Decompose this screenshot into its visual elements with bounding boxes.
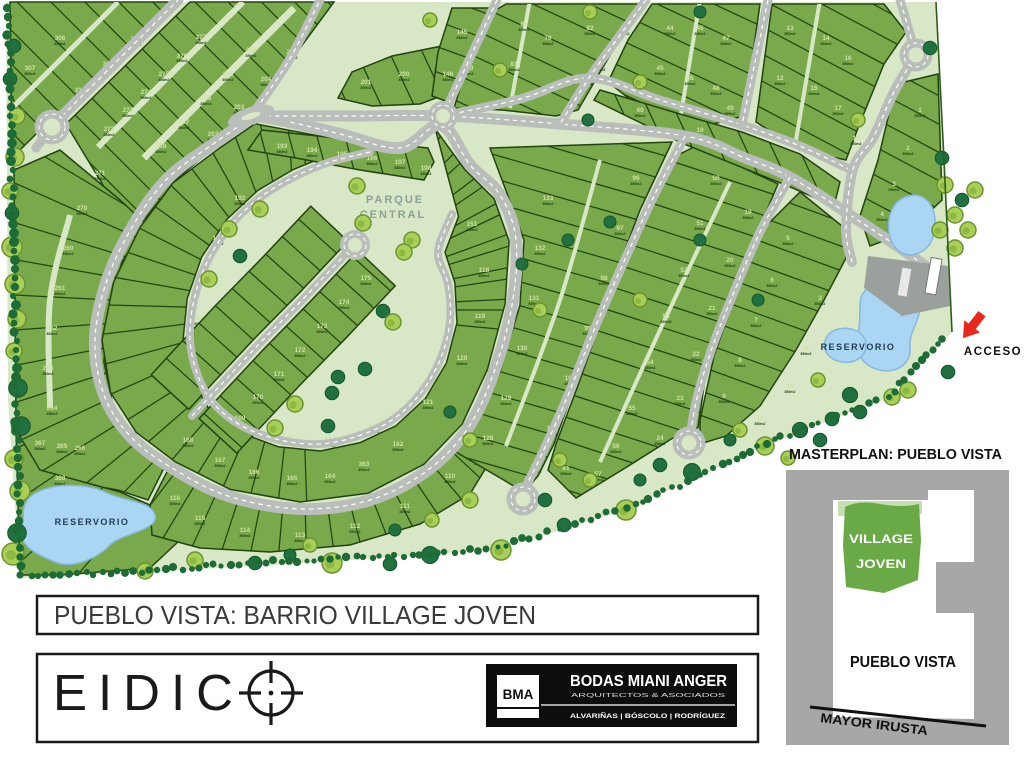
- svg-text:850m2: 850m2: [627, 412, 638, 416]
- svg-text:98: 98: [600, 275, 608, 282]
- svg-text:97: 97: [616, 225, 624, 232]
- svg-text:850m2: 850m2: [877, 218, 888, 222]
- svg-text:173: 173: [317, 323, 328, 330]
- svg-text:850m2: 850m2: [57, 450, 68, 454]
- svg-text:6: 6: [770, 277, 774, 284]
- svg-text:850m2: 850m2: [361, 282, 372, 286]
- svg-text:53: 53: [662, 313, 670, 320]
- svg-text:850m2: 850m2: [721, 42, 732, 46]
- svg-text:118: 118: [479, 267, 490, 274]
- svg-text:850m2: 850m2: [393, 448, 404, 452]
- svg-text:129: 129: [501, 395, 512, 402]
- svg-text:MASTERPLAN: PUEBLO VISTA: MASTERPLAN: PUEBLO VISTA: [789, 447, 1003, 463]
- svg-text:850m2: 850m2: [519, 28, 530, 32]
- svg-text:VILLAGE: VILLAGE: [849, 534, 913, 546]
- svg-text:10: 10: [756, 415, 764, 422]
- svg-text:850m2: 850m2: [833, 112, 844, 116]
- svg-text:850m2: 850m2: [725, 264, 736, 268]
- svg-text:ACCESO: ACCESO: [964, 346, 1022, 358]
- svg-text:850m2: 850m2: [47, 332, 58, 336]
- svg-text:850m2: 850m2: [253, 401, 264, 405]
- svg-text:PUEBLO VISTA: PUEBLO VISTA: [850, 654, 956, 671]
- svg-text:850m2: 850m2: [201, 102, 212, 106]
- svg-text:275: 275: [159, 71, 170, 78]
- svg-text:850m2: 850m2: [399, 78, 410, 82]
- svg-text:9: 9: [722, 393, 726, 400]
- svg-text:850m2: 850m2: [75, 452, 86, 456]
- svg-text:850m2: 850m2: [339, 306, 350, 310]
- svg-text:110: 110: [445, 473, 456, 480]
- svg-text:850m2: 850m2: [843, 62, 854, 66]
- svg-text:850m2: 850m2: [665, 32, 676, 36]
- svg-text:850m2: 850m2: [707, 312, 718, 316]
- svg-text:850m2: 850m2: [685, 82, 696, 86]
- svg-text:850m2: 850m2: [95, 177, 106, 181]
- svg-text:850m2: 850m2: [719, 400, 730, 404]
- svg-text:172: 172: [295, 347, 306, 354]
- svg-text:22: 22: [692, 351, 700, 358]
- svg-text:306: 306: [55, 35, 66, 42]
- svg-text:850m2: 850m2: [903, 152, 914, 156]
- svg-text:850m2: 850m2: [585, 32, 596, 36]
- svg-text:261: 261: [55, 285, 66, 292]
- svg-text:850m2: 850m2: [55, 292, 66, 296]
- svg-text:272: 272: [104, 126, 115, 133]
- svg-text:850m2: 850m2: [63, 252, 74, 256]
- svg-text:368: 368: [55, 475, 66, 482]
- svg-text:19: 19: [744, 209, 752, 216]
- svg-text:850m2: 850m2: [123, 114, 134, 118]
- svg-text:850m2: 850m2: [195, 522, 206, 526]
- svg-text:850m2: 850m2: [611, 450, 622, 454]
- svg-text:850m2: 850m2: [815, 302, 826, 306]
- svg-text:112: 112: [350, 523, 361, 530]
- svg-text:255: 255: [223, 71, 234, 78]
- svg-text:262: 262: [47, 325, 58, 332]
- svg-text:46: 46: [686, 75, 694, 82]
- svg-text:115: 115: [195, 515, 206, 522]
- svg-text:54: 54: [646, 359, 654, 366]
- svg-text:EIDIC: EIDIC: [53, 664, 244, 721]
- svg-text:ALVARIÑAS | BÓSCOLO | RODRÍGUE: ALVARIÑAS | BÓSCOLO | RODRÍGUEZ: [570, 711, 725, 720]
- svg-text:850m2: 850m2: [543, 42, 554, 46]
- svg-text:850m2: 850m2: [695, 32, 706, 36]
- svg-text:170: 170: [253, 394, 264, 401]
- svg-text:850m2: 850m2: [317, 330, 328, 334]
- svg-text:162: 162: [393, 441, 404, 448]
- svg-text:850m2: 850m2: [246, 54, 257, 58]
- svg-text:18: 18: [852, 135, 860, 142]
- svg-text:850m2: 850m2: [755, 422, 766, 426]
- svg-text:200: 200: [399, 71, 410, 78]
- svg-text:24: 24: [656, 435, 664, 442]
- svg-text:270: 270: [77, 205, 88, 212]
- svg-text:850m2: 850m2: [274, 378, 285, 382]
- svg-text:49: 49: [726, 105, 734, 112]
- svg-text:JOVEN: JOVEN: [856, 559, 906, 571]
- svg-text:850m2: 850m2: [235, 202, 246, 206]
- svg-text:850m2: 850m2: [443, 78, 454, 82]
- svg-text:850m2: 850m2: [543, 202, 554, 206]
- svg-text:201: 201: [361, 79, 372, 86]
- svg-text:850m2: 850m2: [645, 366, 656, 370]
- svg-text:197: 197: [395, 159, 406, 166]
- svg-text:7: 7: [754, 317, 758, 324]
- svg-text:RESERVORIO: RESERVORIO: [55, 517, 130, 527]
- svg-text:19: 19: [696, 127, 704, 134]
- svg-text:52: 52: [680, 267, 688, 274]
- svg-text:13: 13: [786, 25, 794, 32]
- svg-text:8: 8: [738, 357, 742, 364]
- svg-text:21: 21: [708, 305, 716, 312]
- svg-text:850m2: 850m2: [307, 154, 318, 158]
- svg-text:80: 80: [520, 21, 528, 28]
- svg-text:1: 1: [918, 107, 922, 114]
- svg-text:850m2: 850m2: [395, 166, 406, 170]
- svg-text:113: 113: [295, 532, 306, 539]
- svg-text:850m2: 850m2: [445, 480, 456, 484]
- svg-text:128: 128: [483, 435, 494, 442]
- svg-text:850m2: 850m2: [25, 72, 36, 76]
- svg-text:175: 175: [361, 275, 372, 282]
- svg-text:850m2: 850m2: [249, 476, 260, 480]
- svg-text:119: 119: [475, 313, 486, 320]
- svg-text:260: 260: [63, 245, 74, 252]
- svg-text:256: 256: [201, 95, 212, 102]
- svg-text:850m2: 850m2: [851, 142, 862, 146]
- svg-text:850m2: 850m2: [421, 172, 432, 176]
- svg-text:96: 96: [632, 175, 640, 182]
- svg-text:164: 164: [325, 473, 336, 480]
- svg-text:850m2: 850m2: [479, 274, 490, 278]
- svg-text:850m2: 850m2: [457, 36, 468, 40]
- svg-text:ARQUITECTOS & ASOCIADOS: ARQUITECTOS & ASOCIADOS: [571, 693, 726, 699]
- svg-text:850m2: 850m2: [775, 82, 786, 86]
- svg-text:131: 131: [529, 295, 540, 302]
- svg-text:274: 274: [141, 89, 152, 96]
- svg-text:48: 48: [712, 85, 720, 92]
- svg-text:56: 56: [612, 443, 620, 450]
- svg-text:192: 192: [235, 195, 246, 202]
- svg-text:850m2: 850m2: [535, 252, 546, 256]
- svg-text:850m2: 850m2: [501, 402, 512, 406]
- svg-text:194: 194: [307, 147, 318, 154]
- svg-text:BMA: BMA: [503, 687, 534, 702]
- svg-text:49: 49: [636, 107, 644, 114]
- svg-text:45: 45: [656, 65, 664, 72]
- svg-text:266: 266: [75, 445, 86, 452]
- svg-text:850m2: 850m2: [735, 364, 746, 368]
- svg-text:273: 273: [123, 107, 134, 114]
- svg-text:850m2: 850m2: [655, 442, 666, 446]
- svg-text:850m2: 850m2: [655, 72, 666, 76]
- svg-text:198: 198: [421, 165, 432, 172]
- svg-text:146: 146: [443, 71, 454, 78]
- svg-text:850m2: 850m2: [561, 472, 572, 476]
- svg-text:850m2: 850m2: [631, 182, 642, 186]
- svg-text:850m2: 850m2: [599, 282, 610, 286]
- svg-text:14: 14: [822, 35, 830, 42]
- svg-text:850m2: 850m2: [821, 42, 832, 46]
- svg-text:3: 3: [892, 181, 896, 188]
- svg-text:850m2: 850m2: [635, 114, 646, 118]
- svg-text:11: 11: [803, 345, 810, 352]
- svg-text:171: 171: [274, 371, 285, 378]
- svg-text:850m2: 850m2: [350, 530, 361, 534]
- svg-text:PUEBLO VISTA: BARRIO VILLAGE J: PUEBLO VISTA: BARRIO VILLAGE JOVEN: [54, 600, 536, 630]
- svg-text:850m2: 850m2: [240, 534, 251, 538]
- svg-text:850m2: 850m2: [695, 227, 706, 231]
- svg-text:55: 55: [628, 405, 636, 412]
- svg-text:51: 51: [696, 220, 704, 227]
- svg-text:11: 11: [787, 383, 794, 390]
- svg-text:850m2: 850m2: [615, 232, 626, 236]
- svg-text:850m2: 850m2: [55, 42, 66, 46]
- svg-text:850m2: 850m2: [457, 362, 468, 366]
- svg-text:850m2: 850m2: [196, 41, 207, 45]
- svg-text:850m2: 850m2: [783, 242, 794, 246]
- svg-text:114: 114: [240, 527, 251, 534]
- svg-text:193: 193: [277, 143, 288, 150]
- svg-text:850m2: 850m2: [361, 86, 372, 90]
- svg-text:850m2: 850m2: [751, 324, 762, 328]
- svg-text:850m2: 850m2: [915, 114, 926, 118]
- svg-text:850m2: 850m2: [159, 78, 170, 82]
- svg-text:81: 81: [510, 61, 518, 68]
- svg-text:850m2: 850m2: [215, 464, 226, 468]
- svg-text:130: 130: [517, 345, 528, 352]
- svg-text:121: 121: [423, 399, 434, 406]
- svg-text:145: 145: [457, 29, 468, 36]
- svg-text:258: 258: [156, 143, 167, 150]
- svg-text:850m2: 850m2: [475, 320, 486, 324]
- svg-text:850m2: 850m2: [277, 150, 288, 154]
- svg-text:850m2: 850m2: [35, 447, 46, 451]
- svg-text:850m2: 850m2: [517, 352, 528, 356]
- svg-text:307: 307: [25, 65, 36, 72]
- svg-text:133: 133: [543, 195, 554, 202]
- svg-text:111: 111: [400, 503, 411, 510]
- svg-text:3: 3: [818, 295, 822, 302]
- svg-text:850m2: 850m2: [287, 482, 298, 486]
- svg-text:850m2: 850m2: [177, 59, 188, 63]
- svg-text:167: 167: [215, 457, 226, 464]
- svg-text:271: 271: [95, 170, 106, 177]
- svg-text:850m2: 850m2: [483, 442, 494, 446]
- svg-text:50: 50: [712, 175, 720, 182]
- svg-text:850m2: 850m2: [170, 502, 181, 506]
- svg-text:850m2: 850m2: [785, 390, 796, 394]
- svg-text:17: 17: [834, 105, 842, 112]
- svg-text:4: 4: [880, 211, 884, 218]
- svg-text:850m2: 850m2: [423, 406, 434, 410]
- svg-text:254: 254: [246, 47, 257, 54]
- svg-text:850m2: 850m2: [43, 372, 54, 376]
- svg-text:850m2: 850m2: [77, 212, 88, 216]
- svg-text:263: 263: [43, 365, 54, 372]
- svg-text:850m2: 850m2: [47, 412, 58, 416]
- svg-text:166: 166: [249, 469, 260, 476]
- svg-text:20: 20: [726, 257, 734, 264]
- svg-text:850m2: 850m2: [104, 133, 115, 137]
- svg-text:850m2: 850m2: [767, 284, 778, 288]
- svg-text:5: 5: [786, 235, 790, 242]
- svg-text:23: 23: [676, 395, 684, 402]
- svg-text:850m2: 850m2: [183, 444, 194, 448]
- svg-text:PARQUE: PARQUE: [366, 194, 424, 206]
- svg-text:132: 132: [535, 245, 546, 252]
- svg-text:174: 174: [339, 299, 350, 306]
- svg-text:168: 168: [183, 437, 194, 444]
- svg-text:82: 82: [586, 25, 594, 32]
- svg-text:850m2: 850m2: [141, 96, 152, 100]
- svg-text:15: 15: [810, 85, 818, 92]
- svg-text:850m2: 850m2: [801, 352, 812, 356]
- svg-text:850m2: 850m2: [295, 354, 306, 358]
- svg-text:850m2: 850m2: [711, 92, 722, 96]
- svg-text:850m2: 850m2: [785, 32, 796, 36]
- svg-text:277: 277: [196, 34, 207, 41]
- svg-text:850m2: 850m2: [711, 182, 722, 186]
- svg-text:165: 165: [287, 475, 298, 482]
- svg-text:363: 363: [359, 461, 370, 468]
- svg-text:264: 264: [47, 405, 58, 412]
- svg-text:850m2: 850m2: [156, 150, 167, 154]
- svg-text:850m2: 850m2: [743, 216, 754, 220]
- svg-text:2: 2: [906, 145, 910, 152]
- svg-text:79: 79: [544, 35, 552, 42]
- svg-text:850m2: 850m2: [661, 320, 672, 324]
- svg-text:850m2: 850m2: [467, 228, 478, 232]
- svg-text:850m2: 850m2: [679, 274, 690, 278]
- svg-text:47: 47: [722, 35, 730, 42]
- svg-text:850m2: 850m2: [889, 188, 900, 192]
- svg-text:850m2: 850m2: [809, 92, 820, 96]
- svg-text:BODAS MIANI ANGER: BODAS MIANI ANGER: [570, 673, 727, 690]
- svg-text:151: 151: [467, 221, 478, 228]
- svg-text:116: 116: [170, 495, 181, 502]
- svg-text:850m2: 850m2: [223, 78, 234, 82]
- svg-text:850m2: 850m2: [400, 510, 411, 514]
- svg-text:44: 44: [666, 25, 674, 32]
- svg-text:850m2: 850m2: [675, 402, 686, 406]
- svg-text:45: 45: [696, 25, 704, 32]
- svg-text:257: 257: [179, 119, 190, 126]
- svg-text:850m2: 850m2: [325, 480, 336, 484]
- svg-text:367: 367: [35, 440, 46, 447]
- svg-text:850m2: 850m2: [359, 468, 370, 472]
- svg-text:850m2: 850m2: [691, 358, 702, 362]
- svg-text:850m2: 850m2: [367, 162, 378, 166]
- svg-text:12: 12: [776, 75, 784, 82]
- svg-text:265: 265: [57, 443, 68, 450]
- svg-text:RESERVORIO: RESERVORIO: [821, 342, 896, 352]
- svg-text:16: 16: [844, 55, 852, 62]
- svg-text:850m2: 850m2: [509, 68, 520, 72]
- svg-text:850m2: 850m2: [179, 126, 190, 130]
- svg-text:120: 120: [457, 355, 468, 362]
